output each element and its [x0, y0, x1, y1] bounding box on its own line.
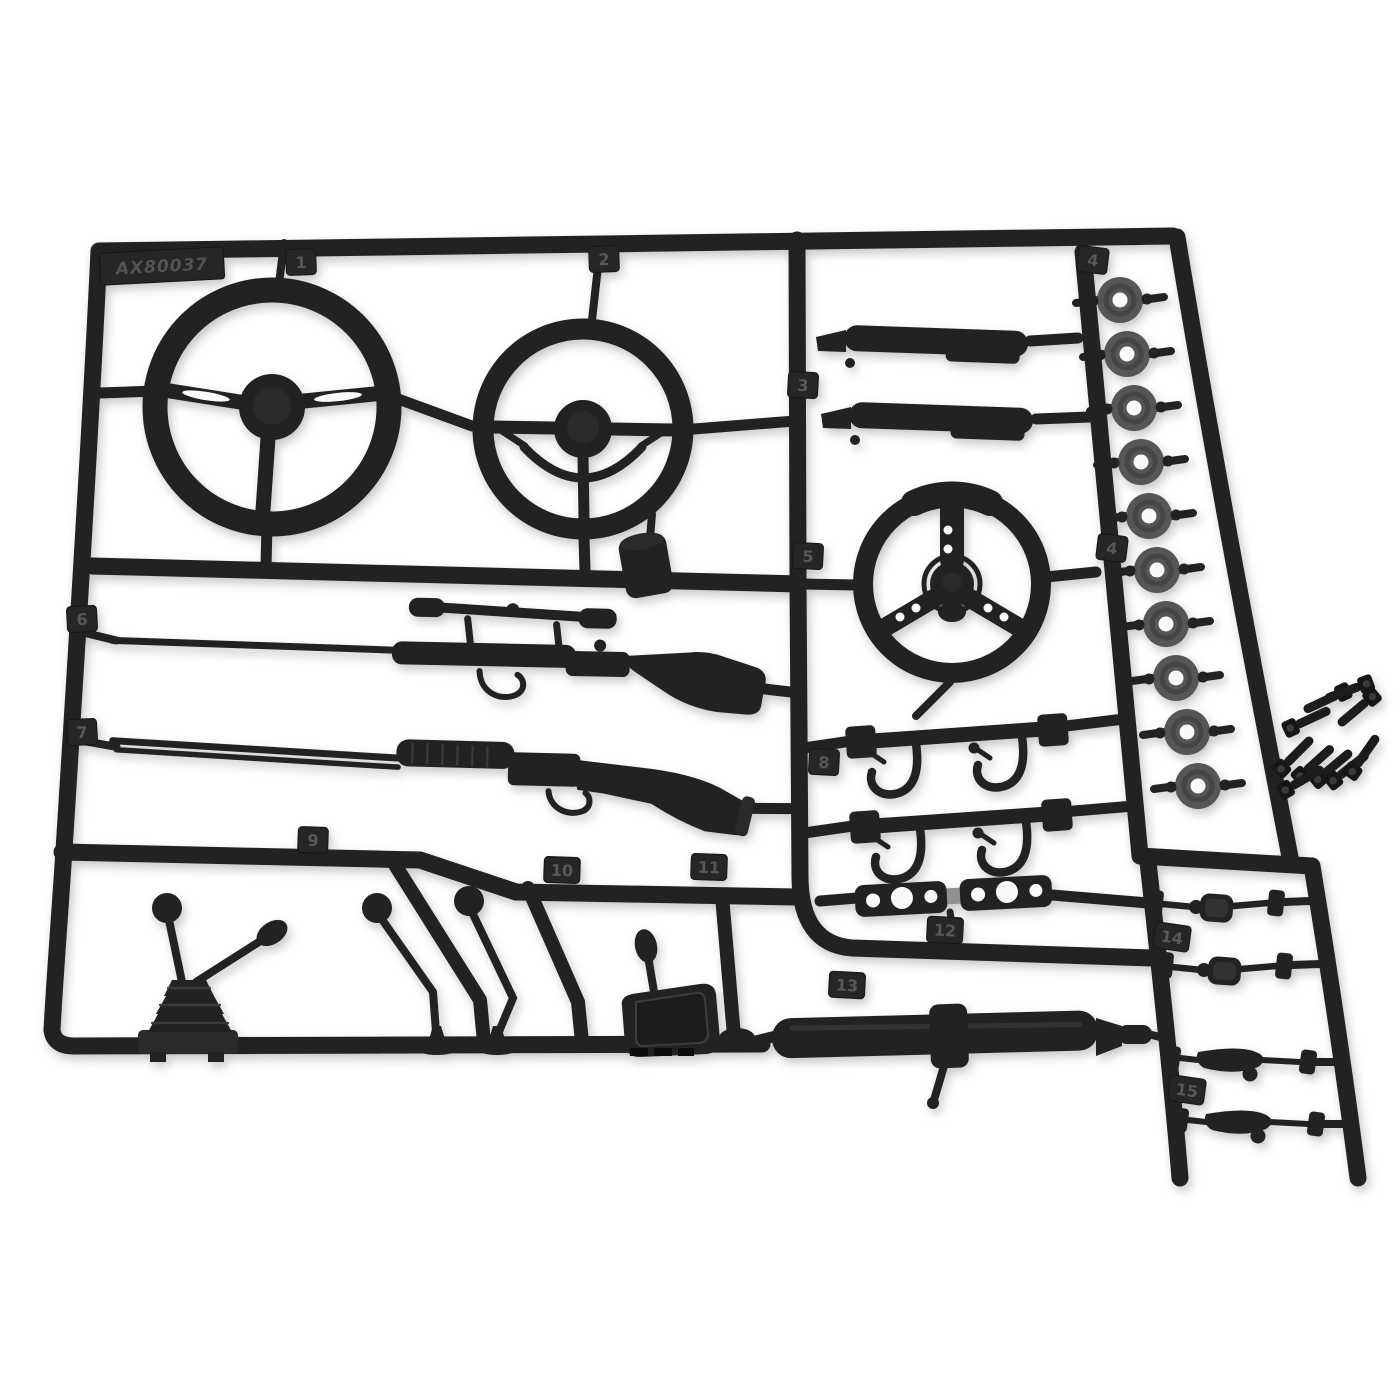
tag-8: 8 [808, 748, 839, 776]
tag-3: 3 [787, 371, 818, 399]
pump-forend [396, 739, 515, 769]
tag-12: 12 [926, 916, 963, 944]
tag-10: 10 [544, 856, 581, 883]
tag-14: 14 [1152, 922, 1191, 953]
part-number-plate: AX80037 [99, 247, 225, 285]
shift-ball-knob [362, 893, 392, 923]
tag-15: 15 [1167, 1075, 1206, 1106]
svg-text:6: 6 [76, 610, 88, 630]
svg-text:1: 1 [295, 253, 307, 272]
svg-text:2: 2 [598, 250, 610, 269]
tag-2: 2 [589, 245, 620, 272]
tag-11: 11 [691, 853, 728, 880]
tag-13: 13 [828, 971, 865, 999]
tag-1: 1 [286, 248, 317, 275]
svg-text:9: 9 [307, 831, 319, 850]
svg-text:8: 8 [818, 753, 830, 773]
svg-text:14: 14 [1160, 927, 1185, 949]
mirror-glass [1204, 898, 1228, 918]
svg-text:4: 4 [1086, 250, 1099, 270]
shifter-gate-recess [636, 993, 708, 1046]
svg-text:11: 11 [698, 858, 721, 878]
tag-5: 5 [792, 542, 823, 570]
tag-4b: 4 [1096, 533, 1129, 562]
svg-text:10: 10 [551, 861, 574, 881]
svg-text:13: 13 [835, 975, 858, 995]
column-collar [929, 1003, 969, 1068]
tag-6: 6 [66, 605, 97, 633]
svg-text:12: 12 [933, 920, 956, 940]
parts-tree-photo: AX80037 [0, 0, 1400, 1400]
tag-7: 7 [66, 718, 97, 746]
svg-text:4: 4 [1105, 538, 1118, 558]
mirror-glass [1212, 961, 1236, 981]
svg-text:3: 3 [797, 376, 809, 396]
shift-ball-knob [152, 893, 182, 923]
svg-text:15: 15 [1175, 1080, 1200, 1102]
tag-4: 4 [1077, 245, 1110, 274]
svg-text:5: 5 [802, 547, 814, 567]
svg-text:7: 7 [76, 723, 88, 743]
shift-ball-knob [454, 886, 484, 916]
tag-9: 9 [298, 826, 329, 853]
